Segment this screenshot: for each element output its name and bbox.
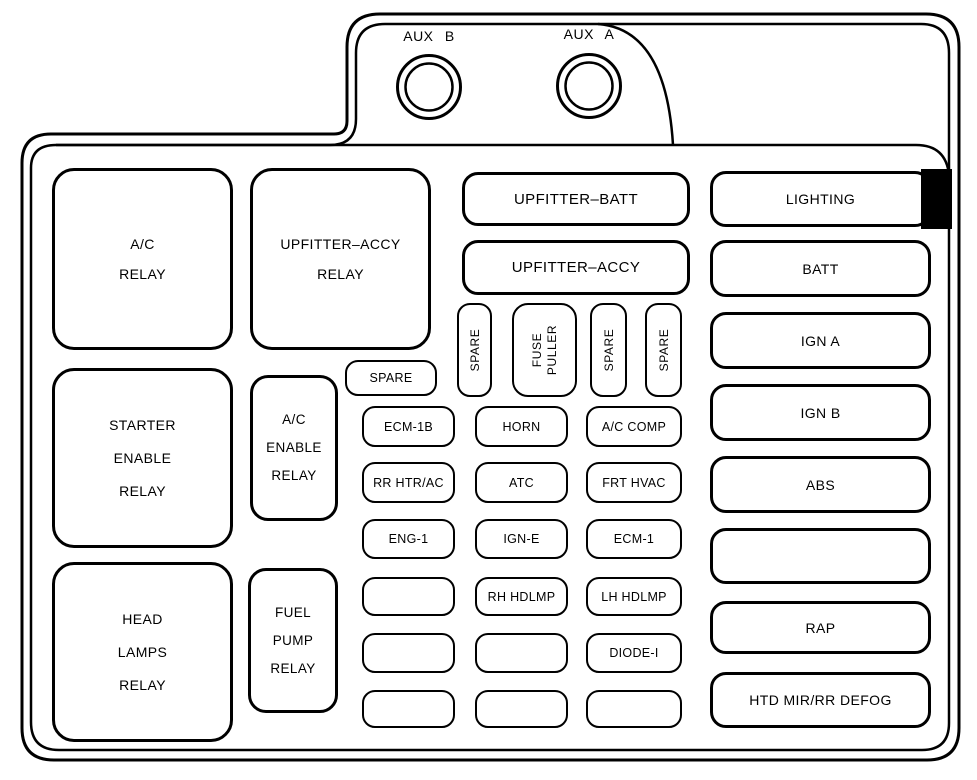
fuse-abs: ABS: [710, 456, 931, 513]
relay-head-lamps-line1: HEAD: [122, 603, 163, 636]
fuse-rh-hdlmp-label: RH HDLMP: [488, 590, 556, 604]
relay-starter-line3: RELAY: [119, 475, 166, 508]
fuse-spare-vertical-1: SPARE: [457, 303, 492, 397]
fuse-blank-r6a: [362, 690, 455, 728]
relay-upfitter-accy-line2: RELAY: [317, 259, 364, 289]
relay-fuel-pump: FUEL PUMP RELAY: [248, 568, 338, 713]
fuse-ecm-1b-label: ECM-1B: [384, 420, 433, 434]
fuse-eng-1: ENG-1: [362, 519, 455, 559]
fuse-frt-hvac-label: FRT HVAC: [602, 476, 666, 490]
fuse-frt-hvac: FRT HVAC: [586, 462, 682, 503]
fuse-upfitter-batt: UPFITTER–BATT: [462, 172, 690, 226]
fuse-ign-e-label: IGN-E: [503, 532, 539, 546]
relay-ac-line1: A/C: [130, 229, 155, 259]
fuse-rh-hdlmp: RH HDLMP: [475, 577, 568, 616]
aux-b-terminal-inner: [406, 64, 453, 111]
relay-fuel-pump-line2: PUMP: [273, 627, 314, 655]
fuse-batt-label: BATT: [802, 261, 838, 277]
relay-starter-enable: STARTER ENABLE RELAY: [52, 368, 233, 548]
fuse-atc-label: ATC: [509, 476, 534, 490]
fuse-blank-r4a: [362, 577, 455, 616]
fuse-diode-i-label: DIODE-I: [609, 646, 658, 660]
fuse-horn: HORN: [475, 406, 568, 447]
relay-starter-line2: ENABLE: [114, 442, 172, 475]
fuse-ign-b-label: IGN B: [800, 405, 840, 421]
fuse-ecm-1b: ECM-1B: [362, 406, 455, 447]
relay-ac-enable-line3: RELAY: [271, 462, 316, 490]
fuse-blank-r6c: [586, 690, 682, 728]
relay-upfitter-accy-line1: UPFITTER–ACCY: [280, 229, 400, 259]
fuse-htd-mir-rr-defog-label: HTD MIR/RR DEFOG: [749, 692, 892, 708]
relay-head-lamps: HEAD LAMPS RELAY: [52, 562, 233, 742]
fuse-ign-b: IGN B: [710, 384, 931, 441]
relay-ac-enable-line1: A/C: [282, 406, 306, 434]
fuse-lighting: LIGHTING: [710, 171, 931, 227]
relay-ac-enable-line2: ENABLE: [266, 434, 322, 462]
fuse-upfitter-accy-label: UPFITTER–ACCY: [512, 259, 641, 276]
fuse-ac-comp: A/C COMP: [586, 406, 682, 447]
fuse-spare-wide: SPARE: [345, 360, 437, 396]
relay-starter-line1: STARTER: [109, 409, 176, 442]
fuse-abs-label: ABS: [806, 477, 835, 493]
fuse-batt: BATT: [710, 240, 931, 297]
fuse-rr-htr-ac-label: RR HTR/AC: [373, 476, 444, 490]
aux-a-terminal-inner: [566, 63, 613, 110]
fuse-puller-line1: FUSE: [530, 325, 545, 375]
fuse-spare-vertical-2-label: SPARE: [602, 329, 616, 372]
fuse-puller: FUSE PULLER: [512, 303, 577, 397]
fuse-lh-hdlmp-label: LH HDLMP: [601, 590, 667, 604]
fuse-spare-vertical-3-label: SPARE: [657, 329, 671, 372]
fuse-horn-label: HORN: [502, 420, 540, 434]
relay-upfitter-accy: UPFITTER–ACCY RELAY: [250, 168, 431, 350]
fuse-puller-line2: PULLER: [545, 325, 560, 375]
fuse-blank-r6b: [475, 690, 568, 728]
aux-recess-curve: [598, 24, 673, 145]
fuse-ign-a-label: IGN A: [801, 333, 840, 349]
fuse-blank-r5b: [475, 633, 568, 673]
fuse-ecm-1-label: ECM-1: [614, 532, 654, 546]
aux-a-terminal-outer: [558, 55, 621, 118]
fuse-htd-mir-rr-defog: HTD MIR/RR DEFOG: [710, 672, 931, 728]
fuse-upfitter-accy: UPFITTER–ACCY: [462, 240, 690, 295]
relay-ac-enable: A/C ENABLE RELAY: [250, 375, 338, 521]
aux-b-label: AUX B: [393, 28, 465, 44]
fuse-spare-vertical-1-label: SPARE: [468, 329, 482, 372]
relay-ac: A/C RELAY: [52, 168, 233, 350]
fuse-spare-wide-label: SPARE: [370, 371, 413, 385]
relay-head-lamps-line3: RELAY: [119, 669, 166, 702]
fuse-box-diagram: AUX B AUX A A/C RELAY STARTER ENABLE REL…: [0, 0, 977, 780]
relay-ac-line2: RELAY: [119, 259, 166, 289]
fuse-eng-1-label: ENG-1: [389, 532, 429, 546]
aux-a-label: AUX A: [553, 26, 625, 42]
fuse-diode-i: DIODE-I: [586, 633, 682, 673]
aux-b-terminal-outer: [398, 56, 461, 119]
fuse-puller-label: FUSE PULLER: [530, 325, 560, 375]
fuse-rap: RAP: [710, 601, 931, 654]
relay-head-lamps-line2: LAMPS: [118, 636, 167, 669]
fuse-ign-e: IGN-E: [475, 519, 568, 559]
fuse-lh-hdlmp: LH HDLMP: [586, 577, 682, 616]
fuse-atc: ATC: [475, 462, 568, 503]
fuse-lighting-label: LIGHTING: [786, 191, 855, 207]
fuse-blank-right: [710, 528, 931, 584]
fuse-ecm-1: ECM-1: [586, 519, 682, 559]
fuse-blank-r5a: [362, 633, 455, 673]
fuse-upfitter-batt-label: UPFITTER–BATT: [514, 191, 638, 208]
black-connector-block: [921, 169, 952, 229]
fuse-spare-vertical-3: SPARE: [645, 303, 682, 397]
fuse-ign-a: IGN A: [710, 312, 931, 369]
relay-fuel-pump-line1: FUEL: [275, 599, 311, 627]
fuse-spare-vertical-2: SPARE: [590, 303, 627, 397]
fuse-rr-htr-ac: RR HTR/AC: [362, 462, 455, 503]
relay-fuel-pump-line3: RELAY: [270, 655, 315, 683]
fuse-rap-label: RAP: [806, 620, 836, 636]
fuse-ac-comp-label: A/C COMP: [602, 420, 666, 434]
